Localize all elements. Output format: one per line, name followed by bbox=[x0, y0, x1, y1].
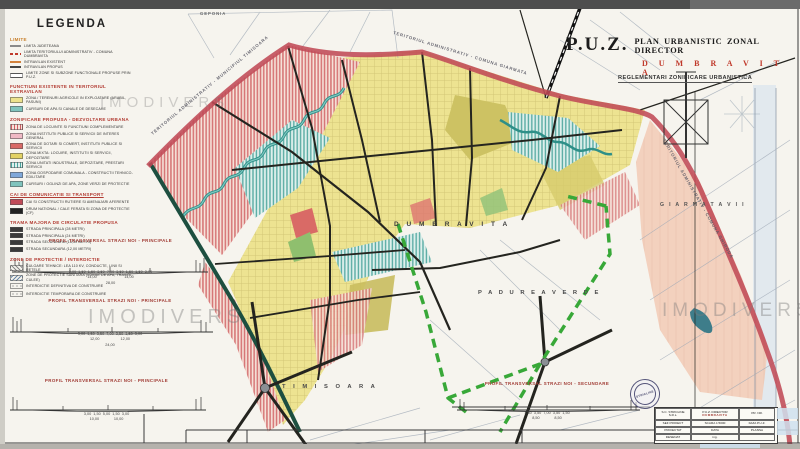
legend-item-label: INTERDICTIE DEFINITIVA DE CONSTRUIRE bbox=[26, 284, 103, 288]
street-profile-4: PROFIL TRANSVERSAL STRAZI NOI - SECUNDAR… bbox=[452, 381, 642, 422]
cartouche-data: DATA bbox=[691, 427, 739, 434]
zoning-areas bbox=[150, 45, 768, 432]
legend-item-label: ZONA UNITATI INDUSTRIALE, DEPOZITARE, PR… bbox=[26, 161, 134, 169]
cartouche-scara: SCARA 1:5000 bbox=[691, 420, 739, 427]
legend-item-label: DRUM NATIONAL / CALE FERATA SI ZONA DE P… bbox=[26, 207, 134, 215]
legend-swatch bbox=[10, 66, 21, 68]
profile-total-width: 28,00 bbox=[8, 281, 213, 285]
zone-residential-hatch-center bbox=[310, 288, 372, 372]
profile-subtotals: 8,50 8,50 bbox=[452, 416, 642, 421]
cartouche-faza: FAZA P.U.Z. bbox=[739, 420, 775, 427]
cartouche-prnr: PR. NR. bbox=[739, 408, 775, 420]
legend-swatch bbox=[10, 153, 23, 159]
legend-item: ZONA DE LOCUINTE SI FUNCTIUNI COMPLEMENT… bbox=[10, 124, 134, 130]
legend-item-label: STRADA PRINCIPALA (28 METRI) bbox=[26, 227, 85, 231]
legend-item-label: LIMITA TERITORIULUI ADMINISTRATIV - COMU… bbox=[24, 50, 134, 58]
legend-item-label: CAI SI CONSTRUCTII RUTIERE SI AMENAJARI … bbox=[26, 200, 129, 204]
highlight-cell bbox=[777, 408, 798, 419]
plan-title: PLAN URBANISTIC ZONAL DIRECTOR bbox=[635, 37, 783, 55]
legend-item-label: CURSURI DE APA SI CANALE DE DESECARE bbox=[26, 107, 106, 111]
street-profile-3: PROFIL TRANSVERSAL STRAZI NOI - PRINCIPA… bbox=[4, 378, 209, 423]
street-profile-1: PROFIL TRANSVERSAL STRAZI NOI - PRINCIPA… bbox=[8, 238, 213, 285]
legend-item-label: LIMITA JUDETEANA bbox=[24, 44, 59, 48]
legend-swatch bbox=[10, 124, 23, 130]
map-label-padurea-verde: P A D U R E A V E R D E bbox=[478, 290, 601, 296]
legend-swatch bbox=[10, 61, 21, 63]
legend-section-heading: ZONIFICARE PROPUSA - DEZVOLTARE URBANA bbox=[10, 117, 134, 122]
legend-item: ZONA GOSPODARIE COMUNALA - CONSTRUCTII T… bbox=[10, 171, 134, 179]
cartouche-name: ing. bbox=[691, 434, 739, 441]
legend-swatch bbox=[10, 208, 23, 214]
legend-swatch bbox=[10, 291, 23, 297]
cartouche-role: SEF PROIECT bbox=[655, 420, 691, 427]
puz-abbreviation: P.U.Z. bbox=[566, 34, 629, 56]
scan-edge-top-light bbox=[690, 0, 800, 9]
cartouche-role: PROIECTAT bbox=[655, 427, 691, 434]
watermark-top: IMODIVERS bbox=[100, 94, 229, 111]
scanned-map-sheet: LEGENDA LIMITELIMITA JUDETEANALIMITA TER… bbox=[0, 0, 800, 449]
legend-section-heading: TRAMA MAJORA DE CIRCULATIE PROPUSA bbox=[10, 220, 134, 225]
legend-section-heading: CAI DE COMUNICATIE SI TRANSPORT bbox=[10, 192, 134, 197]
highlight-cell bbox=[700, 444, 760, 448]
legend-item: CURSURI / OGLINZI DE APA, ZONE VERZI DE … bbox=[10, 181, 134, 187]
legend-item-label: CURSURI / OGLINZI DE APA, ZONE VERZI DE … bbox=[26, 182, 129, 186]
scan-edge-bottom bbox=[0, 444, 800, 449]
legend-swatch bbox=[10, 162, 23, 168]
highlight-cell bbox=[777, 421, 798, 435]
legend-section: LIMITELIMITA JUDETEANALIMITA TERITORIULU… bbox=[10, 37, 134, 79]
profile-title: PROFIL TRANSVERSAL STRAZI NOI - PRINCIPA… bbox=[4, 298, 216, 303]
legend-swatch bbox=[10, 172, 23, 178]
legend-swatch bbox=[10, 133, 23, 139]
legend-item-label: ZONA INSTITUTII PUBLICE SI SERVICII DE I… bbox=[26, 132, 134, 140]
legend-swatch bbox=[10, 106, 23, 112]
legend-swatch bbox=[10, 97, 23, 103]
legend-swatch bbox=[10, 199, 23, 205]
legend-item: CAI SI CONSTRUCTII RUTIERE SI AMENAJARI … bbox=[10, 199, 134, 205]
cartouche-plansa: PLANSA bbox=[739, 427, 775, 434]
street-profile-2: PROFIL TRANSVERSAL STRAZI NOI - PRINCIPA… bbox=[4, 298, 216, 347]
legend-item: STRADA PRINCIPALA (28 METRI) bbox=[10, 227, 134, 232]
legend-item: LIMITA TERITORIULUI ADMINISTRATIV - COMU… bbox=[10, 50, 134, 58]
legend-item: INTRAVILAN EXISTENT bbox=[10, 60, 134, 64]
watermark-right: IMODIVERS bbox=[662, 300, 800, 322]
legend-section-heading: LIMITE bbox=[10, 37, 134, 42]
legend-swatch bbox=[10, 143, 23, 149]
profile-total-width: 24,00 bbox=[4, 343, 216, 347]
zone-salmon-giarmata bbox=[636, 120, 768, 400]
legend-section: ZONIFICARE PROPUSA - DEZVOLTARE URBANAZO… bbox=[10, 117, 134, 187]
legend-item: ZONA DE DOTARI SI COMERT, INSTITUTII PUB… bbox=[10, 142, 134, 150]
legend-item-label: INTRAVILAN EXISTENT bbox=[24, 60, 65, 64]
legend-swatch bbox=[10, 181, 23, 187]
profile-subtotals: 10,00 10,00 bbox=[4, 417, 209, 422]
map-label-timisoara: T I M I S O A R A bbox=[282, 384, 378, 390]
legend-item-label: LIMITE ZONE SI SUBZONE FUNCTIONALE PROPU… bbox=[26, 71, 134, 79]
legend-swatch bbox=[10, 73, 23, 78]
legend-item-label: ZONA MIXTA: LOCUIRE, INSTITUTII SI SERVI… bbox=[26, 151, 134, 159]
scan-edge-top bbox=[0, 0, 800, 9]
legend-section: CAI DE COMUNICATIE SI TRANSPORTCAI SI CO… bbox=[10, 192, 134, 215]
road-node-east bbox=[541, 358, 549, 366]
legend-title: LEGENDA bbox=[10, 18, 134, 30]
legend-item: LIMITA JUDETEANA bbox=[10, 44, 134, 48]
legend-item-label: ZONA GOSPODARIE COMUNALA - CONSTRUCTII T… bbox=[26, 171, 134, 179]
map-label-geponia: GEPONIA bbox=[200, 11, 226, 16]
legend-swatch bbox=[10, 227, 23, 232]
legend-swatch bbox=[10, 53, 21, 55]
title-cartouche: S.C. STRICLINE S.R.L. P.U.Z. DIRECTOR DU… bbox=[654, 407, 778, 444]
profile-title: PROFIL TRANSVERSAL STRAZI NOI - SECUNDAR… bbox=[452, 381, 642, 386]
plan-subtitle: REGLEMENTARI ZONIFICARE URBANISTICA bbox=[618, 75, 752, 83]
road-node-timisoara bbox=[261, 384, 270, 393]
profile-title: PROFIL TRANSVERSAL STRAZI NOI - PRINCIPA… bbox=[4, 378, 209, 383]
legend-item-label: ZONA DE DOTARI SI COMERT, INSTITUTII PUB… bbox=[26, 142, 134, 150]
legend-section-heading: FUNCTIUNI EXISTENTE IN TERITORIUL EXTRAV… bbox=[10, 84, 134, 94]
legend-item: DRUM NATIONAL / CALE FERATA SI ZONA DE P… bbox=[10, 207, 134, 215]
cartouche-project: P.U.Z. DIRECTOR DUMBRAVITA bbox=[691, 408, 739, 420]
legend-item-label: INTRAVILAN PROPUS bbox=[24, 65, 63, 69]
legend-item: ZONA MIXTA: LOCUIRE, INSTITUTII SI SERVI… bbox=[10, 151, 134, 159]
legend-swatch bbox=[10, 45, 21, 47]
profile-title: PROFIL TRANSVERSAL STRAZI NOI - PRINCIPA… bbox=[8, 238, 213, 243]
legend-item: LIMITE ZONE SI SUBZONE FUNCTIONALE PROPU… bbox=[10, 71, 134, 79]
legend-item: ZONA INSTITUTII PUBLICE SI SERVICII DE I… bbox=[10, 132, 134, 140]
legend-item-label: INTERDICTIE TEMPORARA DE CONSTRUIRE bbox=[26, 292, 106, 296]
legend-item: ZONA UNITATI INDUSTRIALE, DEPOZITARE, PR… bbox=[10, 161, 134, 169]
cartouche-project-city: DUMBRAVITA bbox=[702, 414, 727, 417]
legend-item: INTERDICTIE TEMPORARA DE CONSTRUIRE bbox=[10, 291, 134, 297]
legend-item: INTRAVILAN PROPUS bbox=[10, 65, 134, 69]
map-label-dumbravita: D U M B R A V I T A bbox=[394, 221, 510, 228]
stamp-text: STRICLINE bbox=[631, 380, 659, 408]
title-block: P.U.Z.PLAN URBANISTIC ZONAL DIRECTOR D U… bbox=[566, 34, 794, 77]
cartouche-firm: S.C. STRICLINE S.R.L. bbox=[655, 408, 691, 420]
legend-item-label: ZONA DE LOCUINTE SI FUNCTIUNI COMPLEMENT… bbox=[26, 125, 123, 129]
cartouche-role: DESENAT bbox=[655, 434, 691, 441]
cartouche-empty bbox=[739, 434, 775, 441]
